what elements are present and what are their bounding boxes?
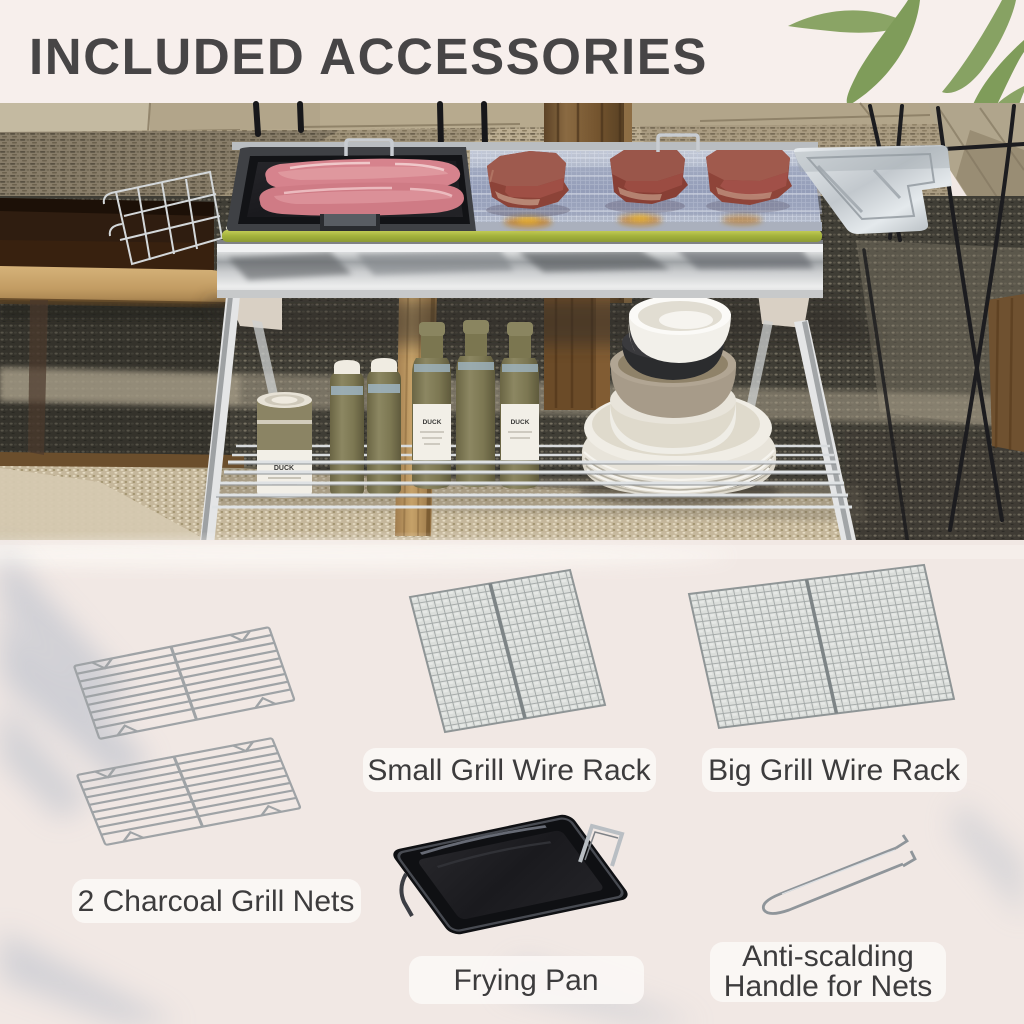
svg-text:Big Grill Wire Rack: Big Grill Wire Rack	[708, 754, 961, 787]
svg-text:Frying Pan: Frying Pan	[453, 964, 598, 997]
svg-text:2 Charcoal Grill Nets: 2 Charcoal Grill Nets	[78, 885, 355, 918]
svg-text:DUCK: DUCK	[511, 419, 530, 426]
svg-text:DUCK: DUCK	[423, 419, 442, 426]
svg-text:Anti-scalding: Anti-scalding	[742, 940, 914, 973]
svg-text:Handle for Nets: Handle for Nets	[724, 970, 932, 1003]
svg-text:Small Grill Wire Rack: Small Grill Wire Rack	[367, 754, 651, 787]
svg-text:INCLUDED ACCESSORIES: INCLUDED ACCESSORIES	[29, 28, 708, 85]
